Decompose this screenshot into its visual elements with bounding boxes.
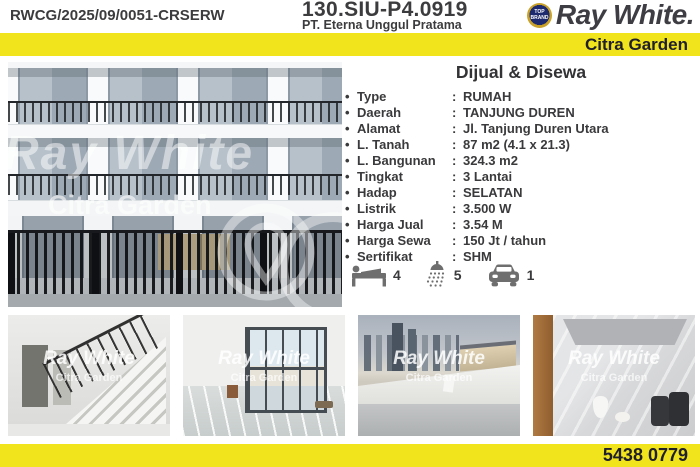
bullet: •: [345, 153, 357, 169]
license-number: 130.SIU-P4.0919: [302, 0, 468, 19]
detail-row-harga-sewa: •Harga Sewa:150 Jt / tahun: [345, 233, 697, 249]
watermark-brand: Ray White: [8, 348, 170, 370]
watermark-brand: Ray White: [533, 348, 695, 370]
office-bar: Citra Garden: [0, 33, 700, 56]
glass-door: [245, 327, 327, 413]
watermark-office: Citra Garden: [358, 372, 520, 384]
detail-value: 3 Lantai: [463, 169, 697, 185]
bathrooms-count: 5: [454, 267, 462, 283]
bullet: •: [345, 201, 357, 217]
watermark-brand: Ray White: [183, 348, 345, 370]
toilet: [593, 396, 608, 418]
bullet: •: [345, 105, 357, 121]
roof-floor: [358, 404, 520, 436]
bullet: •: [345, 169, 357, 185]
footer-phone-bar: 5438 0779: [0, 444, 700, 467]
bullet: •: [345, 185, 357, 201]
detail-colon: :: [452, 153, 463, 169]
detail-colon: :: [452, 185, 463, 201]
thumbnail-photo-stairs: Ray White Citra Garden: [8, 315, 170, 436]
detail-row-type: •Type:RUMAH: [345, 89, 697, 105]
detail-row-tingkat: •Tingkat:3 Lantai: [345, 169, 697, 185]
ray-white-logo: Ray White.: [556, 0, 694, 31]
detail-label: Harga Jual: [357, 217, 452, 233]
reference-code: RWCG/2025/09/0051-CRSERW: [10, 7, 225, 24]
license-block: 130.SIU-P4.0919 PT. Eterna Unggul Pratam…: [302, 0, 468, 31]
thumbnail-photos-row: Ray White Citra Garden Ray White Citra G…: [8, 315, 695, 436]
detail-colon: :: [452, 217, 463, 233]
top-brand-badge-icon: TOP BRAND: [527, 3, 552, 28]
detail-label: L. Tanah: [357, 137, 452, 153]
garage-feature: 1: [486, 262, 535, 288]
main-property-photo: Ray White Citra Garden: [8, 62, 342, 307]
detail-colon: :: [452, 201, 463, 217]
detail-row-daerah: •Daerah:TANJUNG DUREN: [345, 105, 697, 121]
car-icon: [486, 262, 522, 288]
detail-row-l-bangunan: •L. Bangunan:324.3 m2: [345, 153, 697, 169]
detail-value: RUMAH: [463, 89, 697, 105]
bullet: •: [345, 233, 357, 249]
detail-row-harga-jual: •Harga Jual:3.54 M: [345, 217, 697, 233]
watermark-brand: Ray White: [8, 126, 254, 181]
company-name: PT. Eterna Unggul Pratama: [302, 19, 468, 31]
detail-colon: :: [452, 121, 463, 137]
detail-row-alamat: •Alamat:Jl. Tanjung Duren Utara: [345, 121, 697, 137]
bullet: •: [345, 89, 357, 105]
detail-colon: :: [452, 233, 463, 249]
building-floor-top: [8, 68, 342, 124]
detail-label: Hadap: [357, 185, 452, 201]
detail-value: 324.3 m2: [463, 153, 697, 169]
bedrooms-feature: 4: [350, 262, 401, 288]
flyer-page: RWCG/2025/09/0051-CRSERW 130.SIU-P4.0919…: [0, 0, 700, 467]
garage-count: 1: [527, 267, 535, 283]
watermark-office: Citra Garden: [183, 372, 345, 384]
detail-value: 3.500 W: [463, 201, 697, 217]
thumbnail-photo-living-room: Ray White Citra Garden: [183, 315, 345, 436]
listing-details-panel: Dijual & Disewa •Type:RUMAH •Daerah:TANJ…: [345, 62, 697, 265]
detail-value: 87 m2 (4.1 x 21.3): [463, 137, 697, 153]
detail-label: L. Bangunan: [357, 153, 452, 169]
detail-value: 3.54 M: [463, 217, 697, 233]
detail-colon: :: [452, 137, 463, 153]
doormat: [315, 401, 333, 408]
feature-icons-row: 4 5: [350, 258, 550, 292]
detail-label: Type: [357, 89, 452, 105]
bullet: •: [345, 121, 357, 137]
detail-label: Listrik: [357, 201, 452, 217]
badge-label: TOP BRAND: [527, 10, 552, 21]
dark-bin: [651, 396, 669, 426]
bathrooms-feature: 5: [425, 261, 462, 289]
bullet: •: [345, 217, 357, 233]
watermark-office: Citra Garden: [533, 372, 695, 384]
bucket: [615, 412, 630, 422]
detail-row-hadap: •Hadap:SELATAN: [345, 185, 697, 201]
bed-icon: [350, 262, 388, 288]
top-header: RWCG/2025/09/0051-CRSERW 130.SIU-P4.0919…: [0, 0, 700, 33]
tile-floor: [8, 424, 170, 436]
detail-value: TANJUNG DUREN: [463, 105, 697, 121]
thumbnail-photo-bathroom: Ray White Citra Garden: [533, 315, 695, 436]
ceiling-niche: [563, 319, 687, 345]
detail-label: Tingkat: [357, 169, 452, 185]
detail-colon: :: [452, 89, 463, 105]
watermark-brand: Ray White: [358, 348, 520, 370]
watermark-office: Citra Garden: [48, 190, 212, 221]
detail-label: Alamat: [357, 121, 452, 137]
listing-title: Dijual & Disewa: [345, 62, 697, 83]
detail-label: Harga Sewa: [357, 233, 452, 249]
bullet: •: [345, 137, 357, 153]
detail-value: Jl. Tanjung Duren Utara: [463, 121, 697, 137]
thumbnail-photo-rooftop: Ray White Citra Garden: [358, 315, 520, 436]
detail-colon: :: [452, 105, 463, 121]
detail-colon: :: [452, 169, 463, 185]
shower-icon: [425, 261, 449, 289]
dark-bin: [669, 392, 689, 426]
bedrooms-count: 4: [393, 267, 401, 283]
detail-row-listrik: •Listrik:3.500 W: [345, 201, 697, 217]
box: [227, 385, 238, 398]
detail-value: 150 Jt / tahun: [463, 233, 697, 249]
watermark-office: Citra Garden: [8, 372, 170, 384]
detail-row-l-tanah: •L. Tanah:87 m2 (4.1 x 21.3): [345, 137, 697, 153]
detail-value: SELATAN: [463, 185, 697, 201]
detail-label: Daerah: [357, 105, 452, 121]
